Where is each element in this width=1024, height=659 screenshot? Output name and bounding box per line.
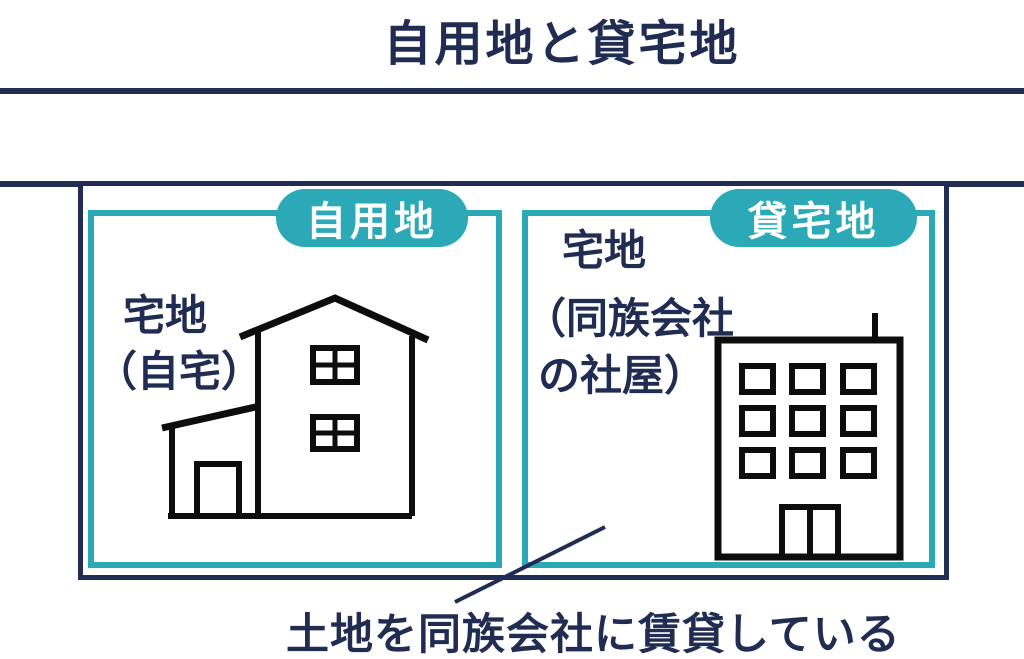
self-use-land-caption: 宅地 （自宅）	[95, 288, 263, 400]
caption-line: 宅地	[95, 288, 263, 344]
page-title: 自用地と貸宅地	[50, 4, 1024, 74]
caption-line: （自宅）	[95, 344, 263, 400]
leased-land-badge-label: 貸宅地	[748, 189, 880, 247]
caption-line: （同族会社	[524, 290, 734, 347]
diagram-canvas: 自用地と貸宅地 自用地 貸宅地 宅地 （自宅） 宅地 （同族会社 の社屋）	[0, 0, 1024, 659]
leased-land-badge: 貸宅地	[710, 189, 917, 247]
self-use-land-badge-label: 自用地	[306, 189, 438, 247]
office-building-icon	[705, 308, 915, 563]
caption-line: 宅地	[524, 222, 734, 279]
top-divider-line	[0, 88, 1024, 94]
leased-land-caption: 宅地 （同族会社 の社屋）	[524, 222, 734, 404]
self-use-land-badge: 自用地	[276, 189, 468, 247]
caption-line: の社屋）	[524, 347, 734, 404]
leader-line	[440, 505, 620, 615]
